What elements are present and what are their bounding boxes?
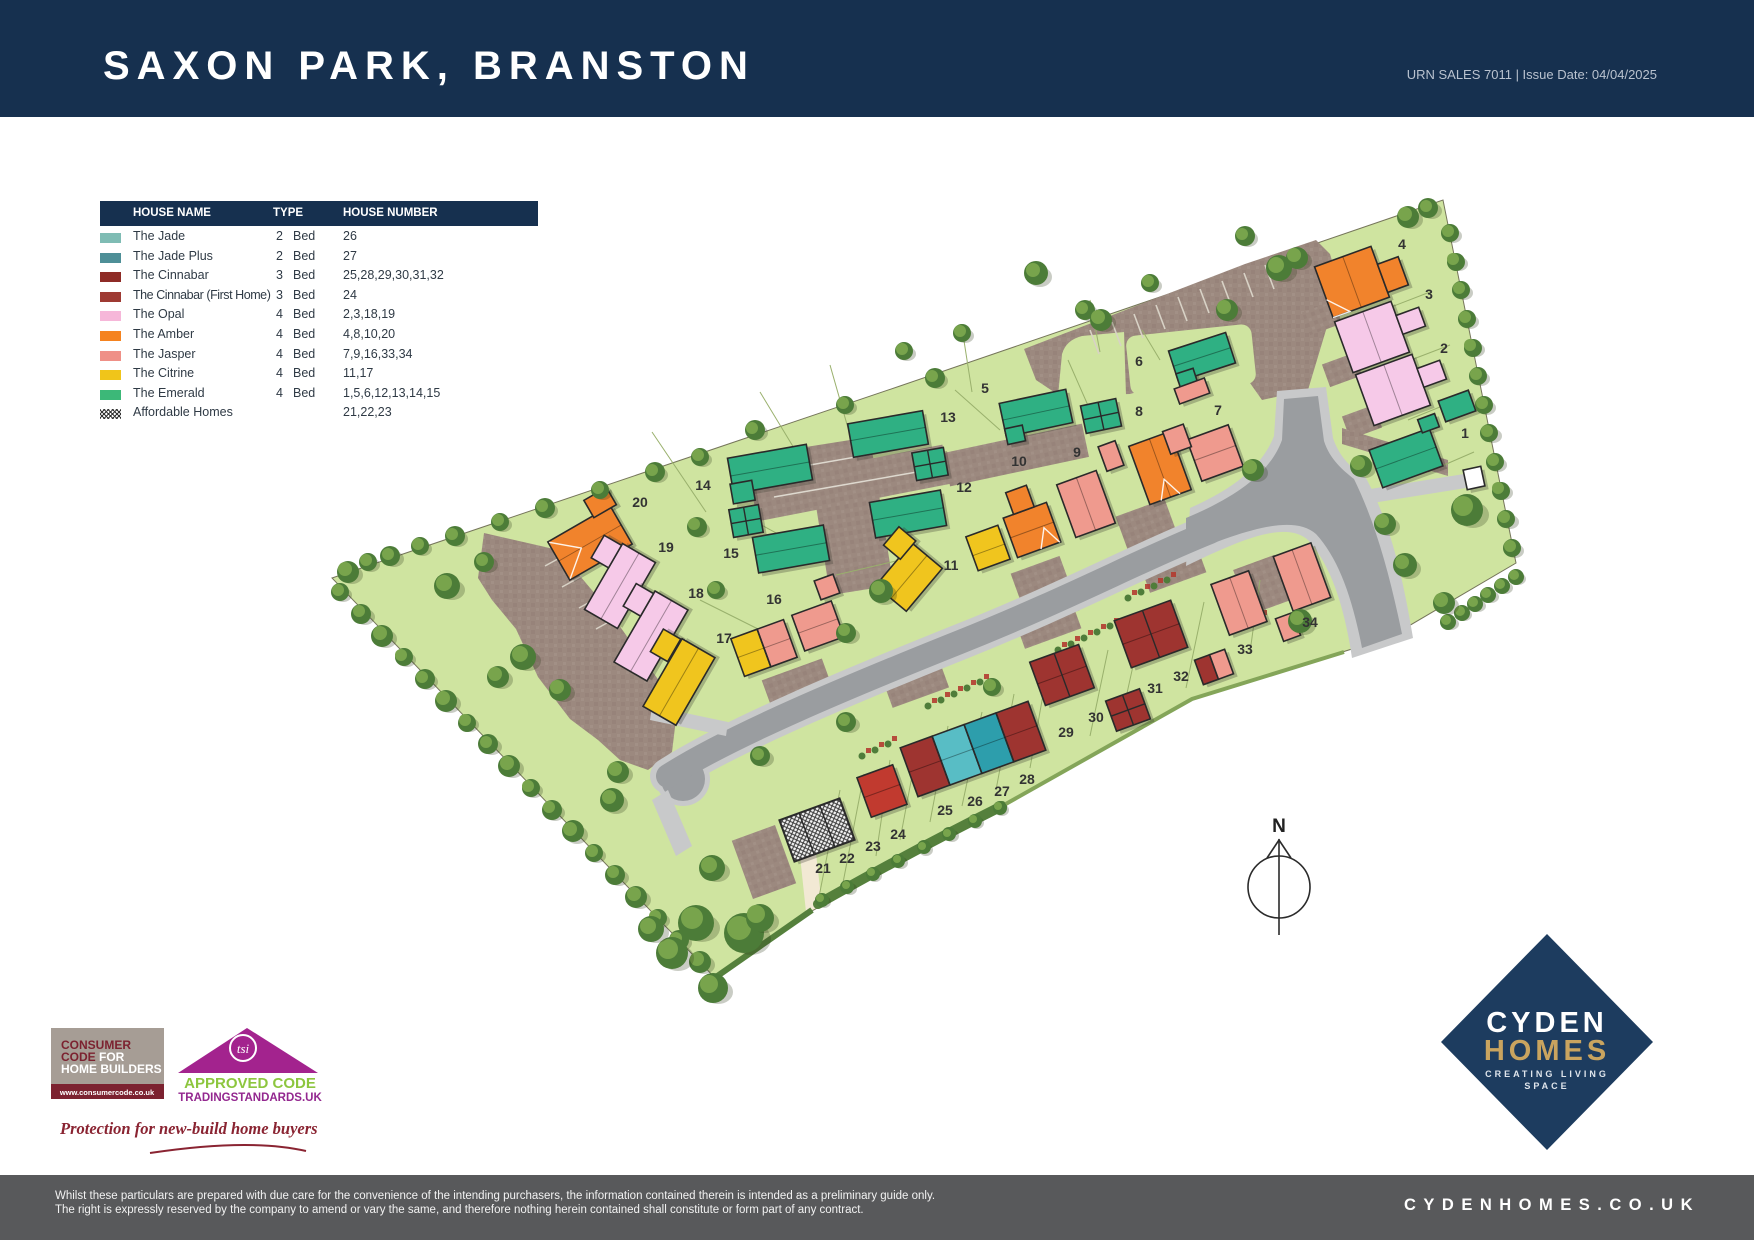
svg-text:Protection for new-build home: Protection for new-build home buyers xyxy=(59,1119,318,1138)
svg-text:28: 28 xyxy=(1019,771,1035,787)
svg-text:30: 30 xyxy=(1088,709,1104,725)
svg-text:6: 6 xyxy=(1135,353,1143,369)
svg-text:22: 22 xyxy=(839,850,855,866)
svg-text:10: 10 xyxy=(1011,453,1027,469)
svg-text:29: 29 xyxy=(1058,724,1074,740)
svg-text:19: 19 xyxy=(658,539,674,555)
svg-text:24: 24 xyxy=(890,826,906,842)
svg-text:HOMES: HOMES xyxy=(1484,1035,1610,1067)
svg-text:tsi: tsi xyxy=(237,1041,250,1056)
svg-text:26: 26 xyxy=(967,793,983,809)
svg-text:5: 5 xyxy=(981,380,989,396)
svg-text:1: 1 xyxy=(1461,425,1469,441)
svg-text:32: 32 xyxy=(1173,668,1189,684)
svg-text:HOME BUILDERS: HOME BUILDERS xyxy=(61,1062,162,1076)
svg-text:21: 21 xyxy=(815,860,831,876)
svg-text:N: N xyxy=(1272,816,1286,837)
svg-text:13: 13 xyxy=(940,409,956,425)
svg-text:4: 4 xyxy=(1398,236,1406,252)
svg-text:16: 16 xyxy=(766,591,782,607)
svg-text:18: 18 xyxy=(688,585,704,601)
svg-text:25: 25 xyxy=(937,802,953,818)
svg-text:8: 8 xyxy=(1135,403,1143,419)
svg-text:2: 2 xyxy=(1440,340,1448,356)
svg-text:www.consumercode.co.uk: www.consumercode.co.uk xyxy=(59,1088,155,1097)
svg-text:15: 15 xyxy=(723,545,739,561)
svg-text:33: 33 xyxy=(1237,641,1253,657)
svg-text:20: 20 xyxy=(632,494,648,510)
svg-text:14: 14 xyxy=(695,477,711,493)
svg-text:APPROVED CODE: APPROVED CODE xyxy=(184,1075,316,1092)
svg-text:12: 12 xyxy=(956,479,972,495)
svg-text:11: 11 xyxy=(944,557,959,573)
svg-text:31: 31 xyxy=(1147,680,1163,696)
svg-text:34: 34 xyxy=(1302,614,1318,630)
svg-text:7: 7 xyxy=(1214,402,1222,418)
svg-text:3: 3 xyxy=(1425,286,1433,302)
svg-text:27: 27 xyxy=(994,783,1010,799)
svg-text:9: 9 xyxy=(1073,444,1081,460)
svg-text:TRADINGSTANDARDS.UK: TRADINGSTANDARDS.UK xyxy=(178,1092,322,1104)
svg-text:23: 23 xyxy=(865,838,881,854)
svg-text:SPACE: SPACE xyxy=(1524,1081,1569,1091)
svg-text:CREATING LIVING: CREATING LIVING xyxy=(1485,1069,1609,1079)
svg-text:17: 17 xyxy=(716,630,732,646)
